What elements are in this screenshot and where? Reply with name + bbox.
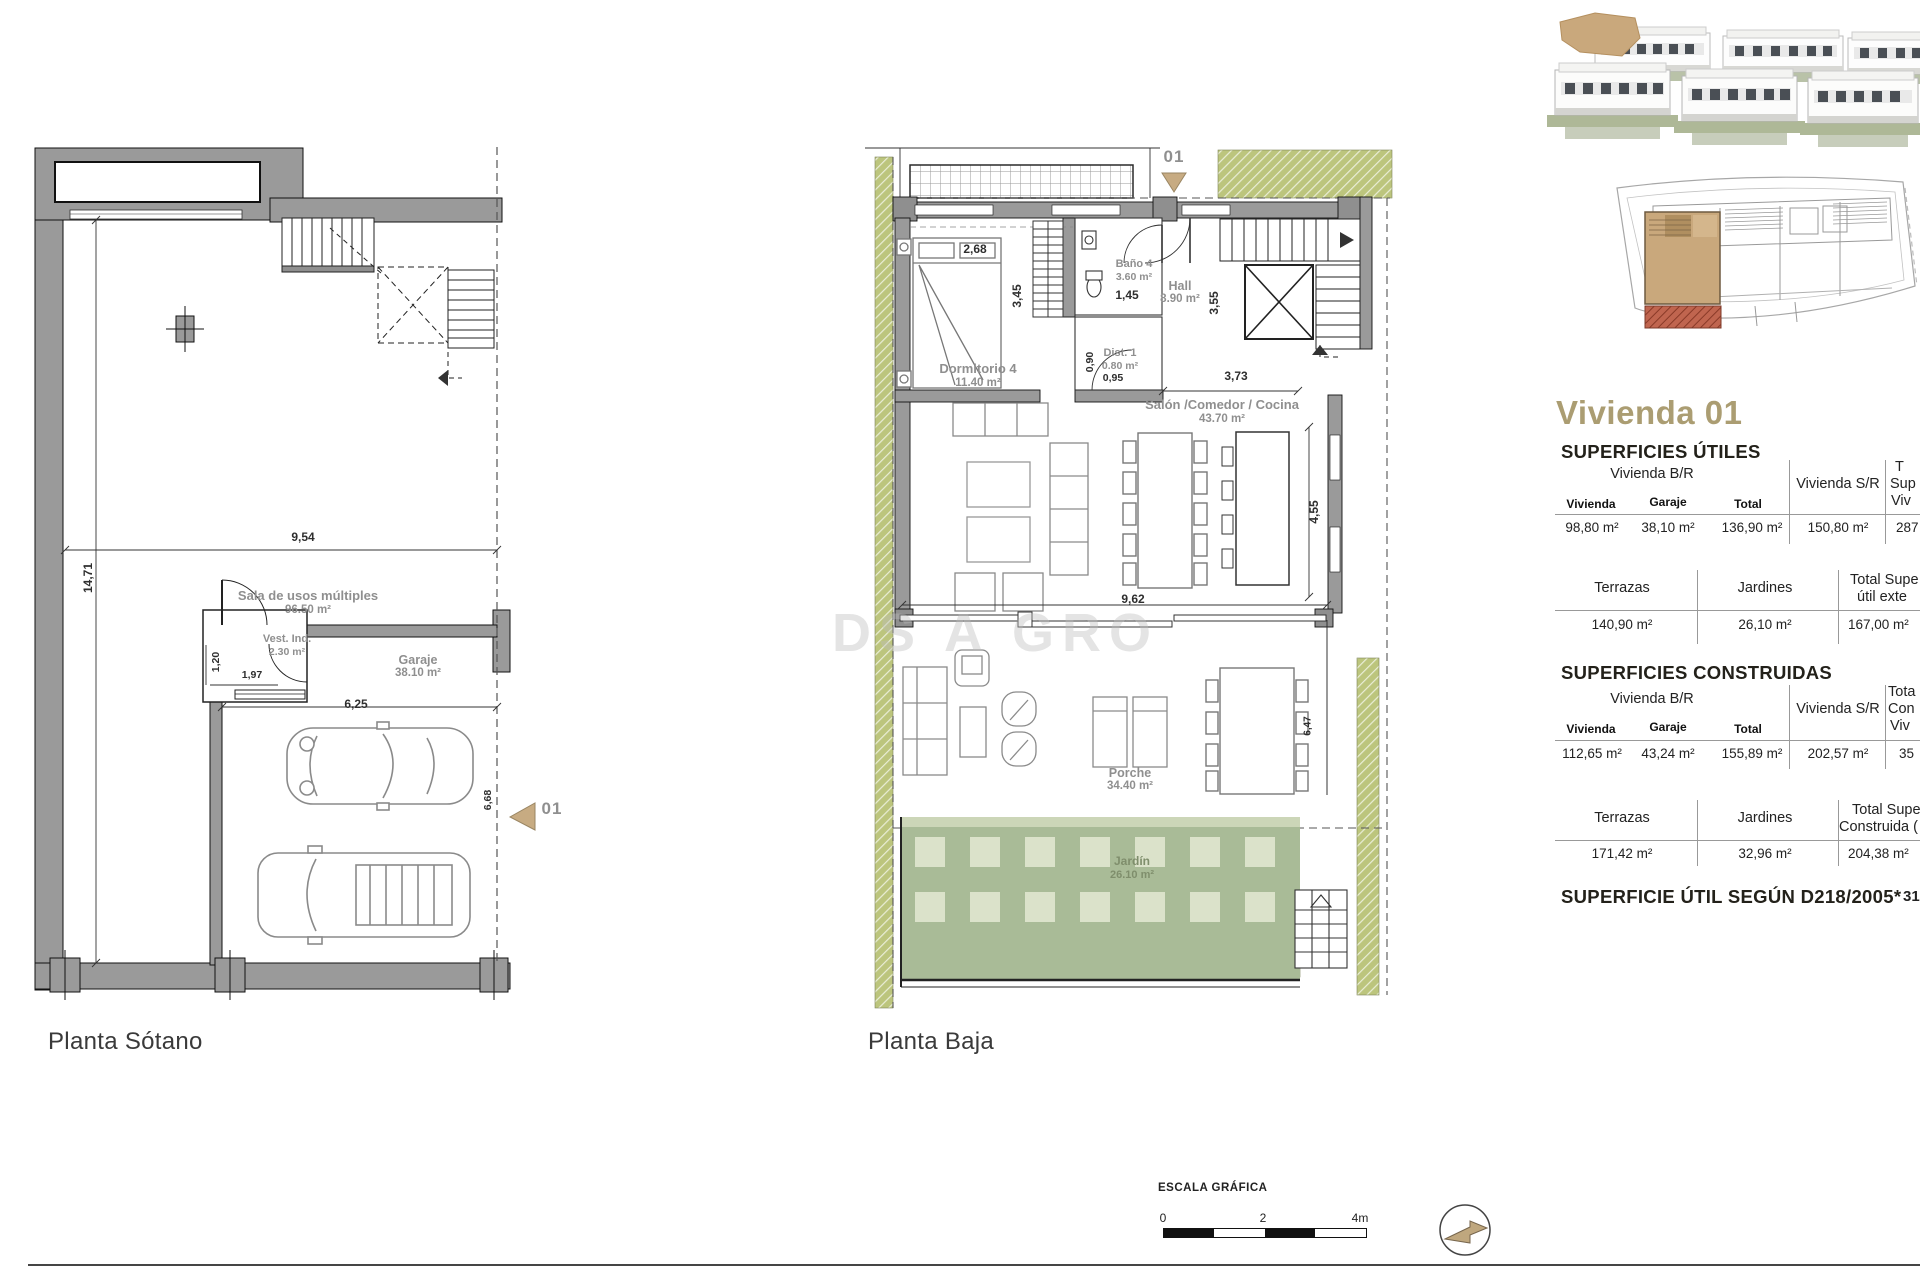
t4-val-0: 171,42 m² xyxy=(1592,846,1653,861)
room-label-vest: Vest. Ind. 2.30 m² xyxy=(263,633,311,658)
t1-vline-1 xyxy=(1789,460,1790,544)
t2-val-1: 26,10 m² xyxy=(1738,617,1791,632)
column xyxy=(166,306,204,352)
t1-col-total-l1: T xyxy=(1895,459,1904,475)
t3-sub-vivienda: Vivienda xyxy=(1566,722,1615,736)
room-name: Hall xyxy=(1169,279,1192,293)
plan-sheet: Sala de usos múltiples 96.50 m² Vest. In… xyxy=(0,0,1920,1280)
t1-sub-vivienda: Vivienda xyxy=(1566,497,1615,511)
scale-bar xyxy=(1163,1228,1367,1238)
t2-h-jardines: Jardines xyxy=(1738,580,1793,596)
t1-rule xyxy=(1555,514,1920,515)
room-name: Dist. 1 xyxy=(1103,347,1136,359)
t1-col-sr: Vivienda S/R xyxy=(1796,476,1880,492)
t3-val-0: 112,65 m² xyxy=(1562,746,1622,761)
unit-marker-triangle-baja xyxy=(1162,173,1186,192)
unit-marker-baja: 01 xyxy=(1164,147,1185,167)
scale-tick-0: 0 xyxy=(1160,1211,1167,1225)
t1-val-0: 98,80 m² xyxy=(1565,520,1618,535)
t3-vline-1 xyxy=(1789,685,1790,769)
t4-h-terrazas: Terrazas xyxy=(1594,810,1650,826)
unit-marker-triangle-sotano xyxy=(510,803,535,830)
porch-furniture xyxy=(903,650,1167,775)
t3-vline-2 xyxy=(1885,685,1886,769)
dim-120: 1,20 xyxy=(210,652,222,672)
t3-sub-garaje: Garaje xyxy=(1649,720,1686,734)
pergola xyxy=(910,165,1133,198)
dim-373: 3,73 xyxy=(1224,369,1247,383)
hall-dim xyxy=(1159,387,1302,395)
kitchen-island xyxy=(1222,432,1289,585)
t3-val-1: 43,24 m² xyxy=(1641,746,1694,761)
garden-stairs xyxy=(1295,890,1347,968)
dim-197: 1,97 xyxy=(242,669,262,681)
room-label-hall: Hall 8.90 m² xyxy=(1160,279,1200,307)
dim-625: 6,25 xyxy=(344,697,367,711)
t1-col-total-l2: Sup xyxy=(1890,476,1916,492)
panel-title: Vivienda 01 xyxy=(1556,394,1743,432)
room-area: 11.40 m² xyxy=(939,377,1016,390)
dim-090: 0,90 xyxy=(1084,352,1096,372)
scale-tick-2: 2 xyxy=(1260,1211,1267,1225)
room-name: Porche xyxy=(1109,766,1151,780)
t4-vline-1 xyxy=(1697,800,1698,866)
room-label-jardin: Jardín 26.10 m² xyxy=(1110,855,1154,881)
salon-furniture xyxy=(953,403,1088,611)
heading-superficies-construidas: SUPERFICIES CONSTRUIDAS xyxy=(1561,662,1832,684)
room-area: 26.10 m² xyxy=(1110,869,1154,882)
t2-rule xyxy=(1555,610,1920,611)
t2-val-2: 167,00 m² xyxy=(1848,617,1909,632)
room-area: 0.80 m² xyxy=(1102,360,1138,372)
t1-val-4: 287 xyxy=(1896,520,1919,535)
dim-268: 2,68 xyxy=(963,242,986,256)
sotano-stairs xyxy=(282,218,494,386)
baja-stairs xyxy=(1220,219,1360,357)
dim-145: 1,45 xyxy=(1115,288,1138,302)
room-name: Salón /Comedor / Cocina xyxy=(1145,397,1299,412)
t1-col-total-l3: Viv xyxy=(1891,493,1911,509)
t2-col-total-l1: Total Supe xyxy=(1850,572,1919,588)
room-label-salon: Salón /Comedor / Cocina 43.70 m² xyxy=(1145,398,1299,426)
dining-table xyxy=(1123,433,1207,588)
t3-val-3: 202,57 m² xyxy=(1808,746,1869,761)
t2-h-terrazas: Terrazas xyxy=(1594,580,1650,596)
t4-col-total-l2: Construida ( xyxy=(1839,819,1918,835)
heading-superficies-utiles: SUPERFICIES ÚTILES xyxy=(1561,441,1761,463)
t1-val-2: 136,90 m² xyxy=(1722,520,1783,535)
room-label-dist: Dist. 1 0.80 m² xyxy=(1102,347,1138,372)
t1-val-1: 38,10 m² xyxy=(1641,520,1694,535)
aerial-render xyxy=(1540,8,1920,153)
t3-rule xyxy=(1555,740,1920,741)
room-area: 3.60 m² xyxy=(1116,271,1153,283)
room-area: 96.50 m² xyxy=(238,604,378,617)
caption-planta-sotano: Planta Sótano xyxy=(48,1028,203,1056)
t2-col-total-l2: útil exte xyxy=(1857,589,1907,605)
wardrobe xyxy=(1033,221,1063,317)
t4-val-2: 204,38 m² xyxy=(1848,846,1909,861)
caption-planta-baja: Planta Baja xyxy=(868,1028,994,1056)
t2-vline-1 xyxy=(1697,570,1698,644)
car-suv xyxy=(258,846,470,944)
room-area: 38.10 m² xyxy=(395,667,441,680)
t3-col-total-l2: Con xyxy=(1888,701,1915,717)
t3-col-sr: Vivienda S/R xyxy=(1796,701,1880,717)
site-plan xyxy=(1605,168,1920,338)
room-area: 43.70 m² xyxy=(1145,413,1299,426)
room-label-dormitorio: Dormitorio 4 11.40 m² xyxy=(939,362,1016,390)
t3-group-header: Vivienda B/R xyxy=(1610,691,1694,707)
t1-vline-2 xyxy=(1885,460,1886,544)
room-name: Baño 4 xyxy=(1116,258,1153,270)
t1-sub-total: Total xyxy=(1734,497,1762,511)
room-label-porche: Porche 34.40 m² xyxy=(1107,766,1153,794)
t4-val-1: 32,96 m² xyxy=(1738,846,1791,861)
room-name: Dormitorio 4 xyxy=(939,361,1016,376)
room-label-garaje: Garaje 38.10 m² xyxy=(395,653,441,681)
t4-vline-2 xyxy=(1838,800,1839,866)
watermark: DS A GRO xyxy=(832,602,1159,664)
t4-col-total-l1: Total Supe xyxy=(1852,802,1920,818)
unit-marker-sotano: 01 xyxy=(542,799,563,819)
scale-bar-label: ESCALA GRÁFICA xyxy=(1158,1182,1267,1194)
room-name: Garaje xyxy=(399,653,438,667)
t3-col-total-l3: Viv xyxy=(1890,718,1910,734)
dim-647: 6,47 xyxy=(1303,716,1314,735)
t3-val-4: 35 xyxy=(1899,746,1914,761)
t4-rule xyxy=(1555,840,1920,841)
t2-val-0: 140,90 m² xyxy=(1592,617,1653,632)
t4-h-jardines: Jardines xyxy=(1738,810,1793,826)
t3-col-total-l1: Tota xyxy=(1888,684,1915,700)
room-label-bano: Baño 4 3.60 m² xyxy=(1116,258,1153,283)
render-buildings xyxy=(1547,13,1920,147)
dim-1471: 14,71 xyxy=(81,563,95,593)
footnote-value: 31 xyxy=(1903,888,1920,905)
planta-sotano-drawing xyxy=(30,140,630,1020)
room-label-sala: Sala de usos múltiples 96.50 m² xyxy=(238,589,378,617)
dim-355: 3,55 xyxy=(1207,291,1221,314)
room-area: 34.40 m² xyxy=(1107,780,1153,793)
dim-954: 9,54 xyxy=(291,530,314,544)
highlighted-unit-site xyxy=(1645,212,1721,328)
t1-val-3: 150,80 m² xyxy=(1808,520,1869,535)
sotano-window xyxy=(55,162,260,219)
highlighted-unit-3d xyxy=(1560,13,1640,56)
room-name: Sala de usos múltiples xyxy=(238,588,378,603)
t3-val-2: 155,89 m² xyxy=(1722,746,1783,761)
jardin xyxy=(901,817,1300,987)
sheet-bottom-border xyxy=(28,1264,1920,1266)
car-sports xyxy=(287,722,473,810)
footnote-label: SUPERFICIE ÚTIL SEGÚN D218/2005* xyxy=(1561,886,1901,908)
room-area: 8.90 m² xyxy=(1160,293,1200,306)
dim-668: 6,68 xyxy=(482,790,494,810)
t3-sub-total: Total xyxy=(1734,722,1762,736)
dim-455: 4,55 xyxy=(1307,500,1321,523)
dim-345: 3,45 xyxy=(1010,284,1024,307)
room-name: Jardín xyxy=(1114,854,1150,868)
dim-095: 0,95 xyxy=(1103,372,1123,384)
scale-tick-4: 4m xyxy=(1352,1211,1369,1225)
room-area: 2.30 m² xyxy=(263,646,311,658)
porch-dining xyxy=(1206,668,1308,794)
t2-vline-2 xyxy=(1838,570,1839,644)
room-name: Vest. Ind. xyxy=(263,633,311,645)
t1-group-header: Vivienda B/R xyxy=(1610,466,1694,482)
north-arrow xyxy=(1437,1202,1493,1258)
t1-sub-garaje: Garaje xyxy=(1649,495,1686,509)
